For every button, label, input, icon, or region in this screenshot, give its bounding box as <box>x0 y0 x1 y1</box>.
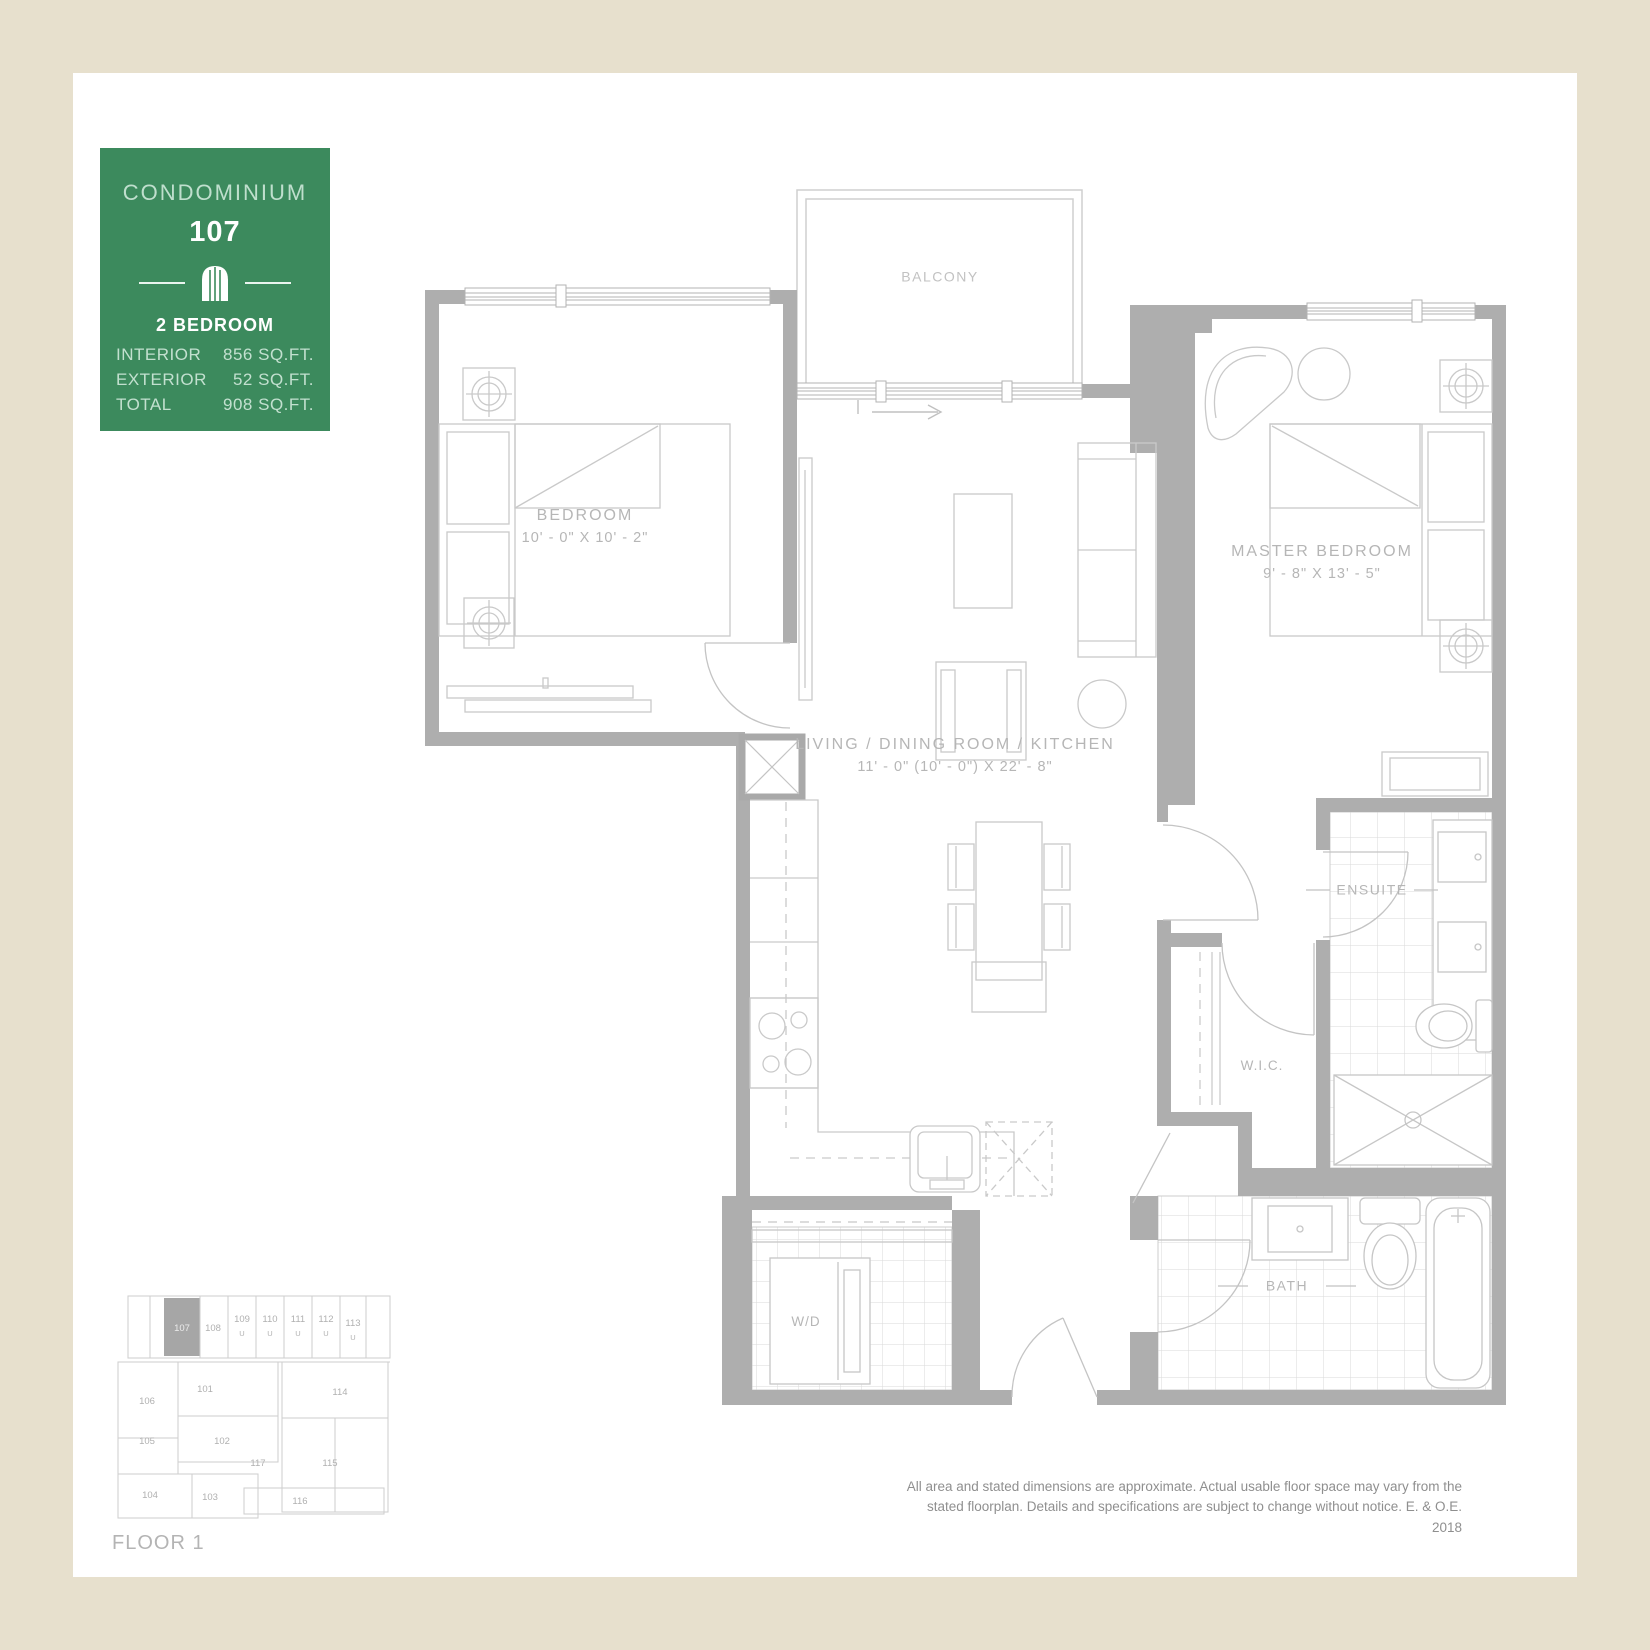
master-bedroom-name: MASTER BEDROOM <box>1231 540 1413 564</box>
stat-value: 856 SQ.FT. <box>223 342 314 367</box>
stat-value: 52 SQ.FT. <box>233 367 314 392</box>
keyplan-unit-label: 116 <box>292 1496 307 1507</box>
keyplan-unit-label: 111 <box>291 1314 305 1325</box>
keyplan-unit-label: 103 <box>202 1492 218 1503</box>
keyplan-unit-label: 115 <box>322 1458 337 1469</box>
keyplan <box>118 1296 390 1518</box>
laundry-label: W/D <box>791 1312 820 1332</box>
keyplan-unit-label: 110 <box>262 1314 277 1325</box>
floor-key-label: FLOOR 1 <box>112 1532 205 1555</box>
bedroom-dimensions: 10' - 0" X 10' - 2" <box>522 528 649 550</box>
keyplan-unit-label: 104 <box>142 1490 158 1501</box>
floorplan-sheet: 107 108 109 U 110 U 111 U 112 U 113 U 10… <box>0 0 1650 1650</box>
arched-window-icon <box>201 265 229 301</box>
bedroom-label: BEDROOM 10' - 0" X 10' - 2" <box>522 504 649 550</box>
keyplan-u-mark: U <box>350 1333 355 1342</box>
wic-label: W.I.C. <box>1241 1056 1284 1076</box>
master-bedroom-dimensions: 9' - 8" X 13' - 5" <box>1231 564 1413 586</box>
master-bedroom-label: MASTER BEDROOM 9' - 8" X 13' - 5" <box>1231 540 1413 586</box>
keyplan-u-mark: U <box>323 1329 328 1338</box>
keyplan-u-mark: U <box>295 1329 300 1338</box>
living-dimensions: 11' - 0" (10' - 0") X 22' - 8" <box>795 757 1115 779</box>
stat-value: 908 SQ.FT. <box>223 392 314 417</box>
keyplan-unit-label: 108 <box>205 1323 221 1334</box>
shaft <box>742 737 802 797</box>
keyplan-unit-label: 117 <box>250 1458 265 1469</box>
bath-label: BATH <box>1266 1276 1308 1297</box>
unit-info-card: CONDOMINIUM 107 2 BEDROOM INTERIOR 856 S… <box>100 148 330 431</box>
stat-label: EXTERIOR <box>116 367 207 392</box>
windows <box>465 285 1475 402</box>
keyplan-unit-label: 102 <box>214 1436 230 1447</box>
disclaimer: All area and stated dimensions are appro… <box>902 1477 1462 1538</box>
unit-number: 107 <box>189 216 240 249</box>
keyplan-unit-label: 112 <box>318 1314 333 1325</box>
living-name: LIVING / DINING ROOM / KITCHEN <box>795 733 1115 757</box>
card-title: CONDOMINIUM <box>123 180 308 206</box>
wic-closet <box>1200 952 1220 1105</box>
divider-line <box>139 282 185 284</box>
keyplan-u-mark: U <box>239 1329 244 1338</box>
keyplan-unit-label: 105 <box>139 1436 155 1447</box>
stat-row-interior: INTERIOR 856 SQ.FT. <box>116 342 314 367</box>
ceiling-fixture-icon <box>463 368 515 420</box>
balcony-label: BALCONY <box>901 267 978 288</box>
keyplan-unit-label: 106 <box>139 1396 155 1407</box>
balcony-outline <box>797 190 1082 392</box>
bedroom-name: BEDROOM <box>522 504 649 528</box>
stat-row-exterior: EXTERIOR 52 SQ.FT. <box>116 367 314 392</box>
keyplan-unit-label: 109 <box>234 1314 250 1325</box>
keyplan-unit-label: 107 <box>174 1323 190 1334</box>
keyplan-u-mark: U <box>267 1329 272 1338</box>
entry-arrow <box>858 400 941 419</box>
stat-label: INTERIOR <box>116 342 201 367</box>
disclaimer-line-1: All area and stated dimensions are appro… <box>902 1477 1462 1497</box>
card-icon-row <box>139 265 291 301</box>
disclaimer-line-2: stated floorplan. Details and specificat… <box>902 1497 1462 1538</box>
living-label: LIVING / DINING ROOM / KITCHEN 11' - 0" … <box>795 733 1115 779</box>
divider-line <box>245 282 291 284</box>
stat-label: TOTAL <box>116 392 172 417</box>
keyplan-unit-label: 114 <box>332 1387 347 1398</box>
living-furniture <box>799 443 1156 1012</box>
ensuite-label: ENSUITE <box>1336 880 1407 901</box>
keyplan-unit-label: 113 <box>345 1318 360 1329</box>
unit-type-label: 2 BEDROOM <box>156 315 274 336</box>
kitchen <box>750 800 1052 1196</box>
keyplan-unit-label: 101 <box>197 1384 213 1395</box>
ceiling-fixture-icon <box>1440 360 1492 412</box>
unit-stats: INTERIOR 856 SQ.FT. EXTERIOR 52 SQ.FT. T… <box>100 342 330 417</box>
stat-row-total: TOTAL 908 SQ.FT. <box>116 392 314 417</box>
